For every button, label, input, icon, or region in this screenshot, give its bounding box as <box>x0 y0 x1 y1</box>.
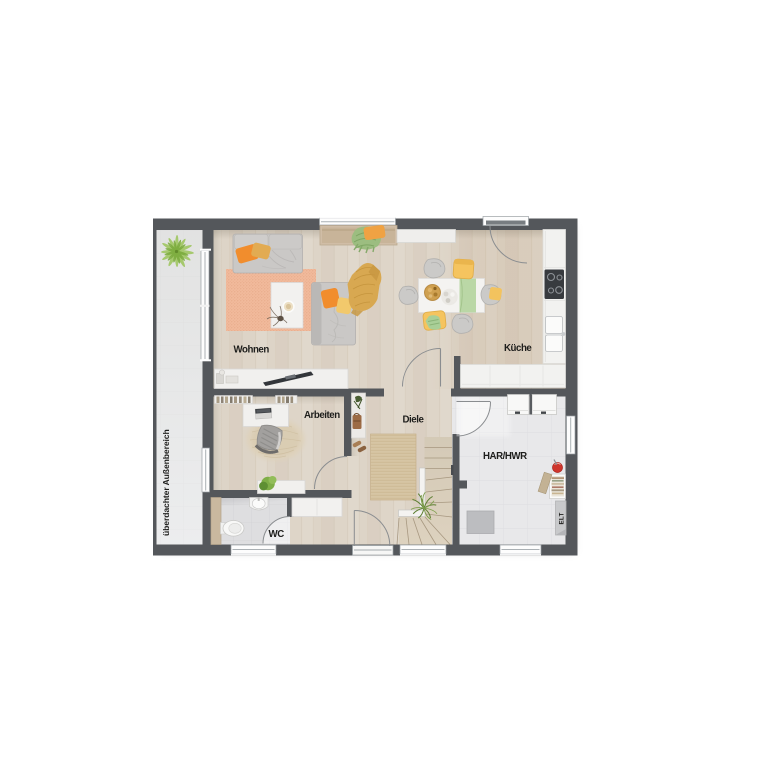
svg-text:Arbeiten: Arbeiten <box>304 410 340 421</box>
svg-text:überdachter Außenbereich: überdachter Außenbereich <box>161 429 171 536</box>
svg-text:Diele: Diele <box>403 415 425 426</box>
svg-text:Wohnen: Wohnen <box>234 345 270 356</box>
svg-text:ELT: ELT <box>559 512 566 524</box>
svg-text:WC: WC <box>269 529 285 540</box>
svg-text:HAR/HWR: HAR/HWR <box>483 451 527 462</box>
svg-text:Küche: Küche <box>504 343 532 354</box>
